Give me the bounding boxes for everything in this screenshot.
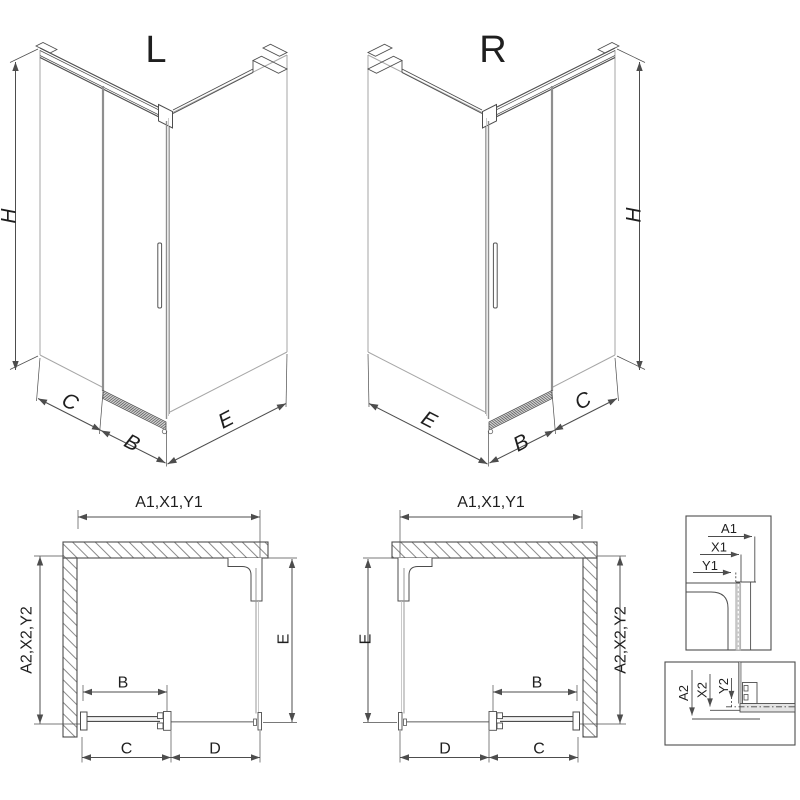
dim-label-entry: C [533,741,545,758]
dim-label-fixed: C [571,387,596,415]
dim-label-depth: A2,X2,Y2 [19,606,36,674]
detail-label-y1: Y1 [702,558,718,573]
iso-view-right: R H E B C [368,29,646,467]
wall-top [392,542,597,558]
technical-drawing-page: L H C B E R H E B C A1,X1,Y1 A2,X2,Y2 E … [0,0,800,800]
plan-view-left: A1,X1,Y1 A2,X2,Y2 E B C D [19,494,298,763]
detail-label-a1: A1 [721,521,737,536]
detail-label-y2: Y2 [716,678,731,694]
detail-label-x2: X2 [695,682,710,698]
dim-label-width: A1,X1,Y1 [135,494,203,511]
detail-label-a2: A2 [676,685,691,701]
iso-left-linework [10,43,287,467]
bottom-rail-section [740,704,795,713]
dim-label-height: H [0,208,21,224]
wall-top [63,542,268,558]
dim-label-door: B [532,675,543,692]
detail-label-x1: X1 [711,540,727,555]
dim-label-fixed: D [209,741,221,758]
variant-label-left: L [145,29,166,71]
dim-label-height: H [623,207,646,223]
iso-view-left: L H C B E [0,29,287,467]
dim-label-door: B [121,430,144,457]
iso-right-linework [368,43,645,467]
dim-label-depth: A2,X2,Y2 [613,606,630,674]
shower-enclosure-drawing: L H C B E R H E B C A1,X1,Y1 A2,X2,Y2 E … [0,0,800,800]
dim-label-side: E [358,634,375,645]
dim-label-fixed: C [58,388,83,416]
dim-label-fixed: D [439,741,451,758]
dim-label-entry: C [121,741,133,758]
wall-right [583,558,597,737]
wall-left [63,558,77,737]
dim-label-side: E [276,634,293,645]
dim-label-width: A1,X1,Y1 [457,494,525,511]
detail-wall-profile: A1 X1 Y1 [686,516,771,650]
plan-view-right: A1,X1,Y1 E A2,X2,Y2 B D C [358,494,630,763]
variant-label-right: R [479,29,506,71]
dim-label-door: B [118,675,129,692]
detail-bottom-rail: A2 X2 Y2 [665,662,795,745]
